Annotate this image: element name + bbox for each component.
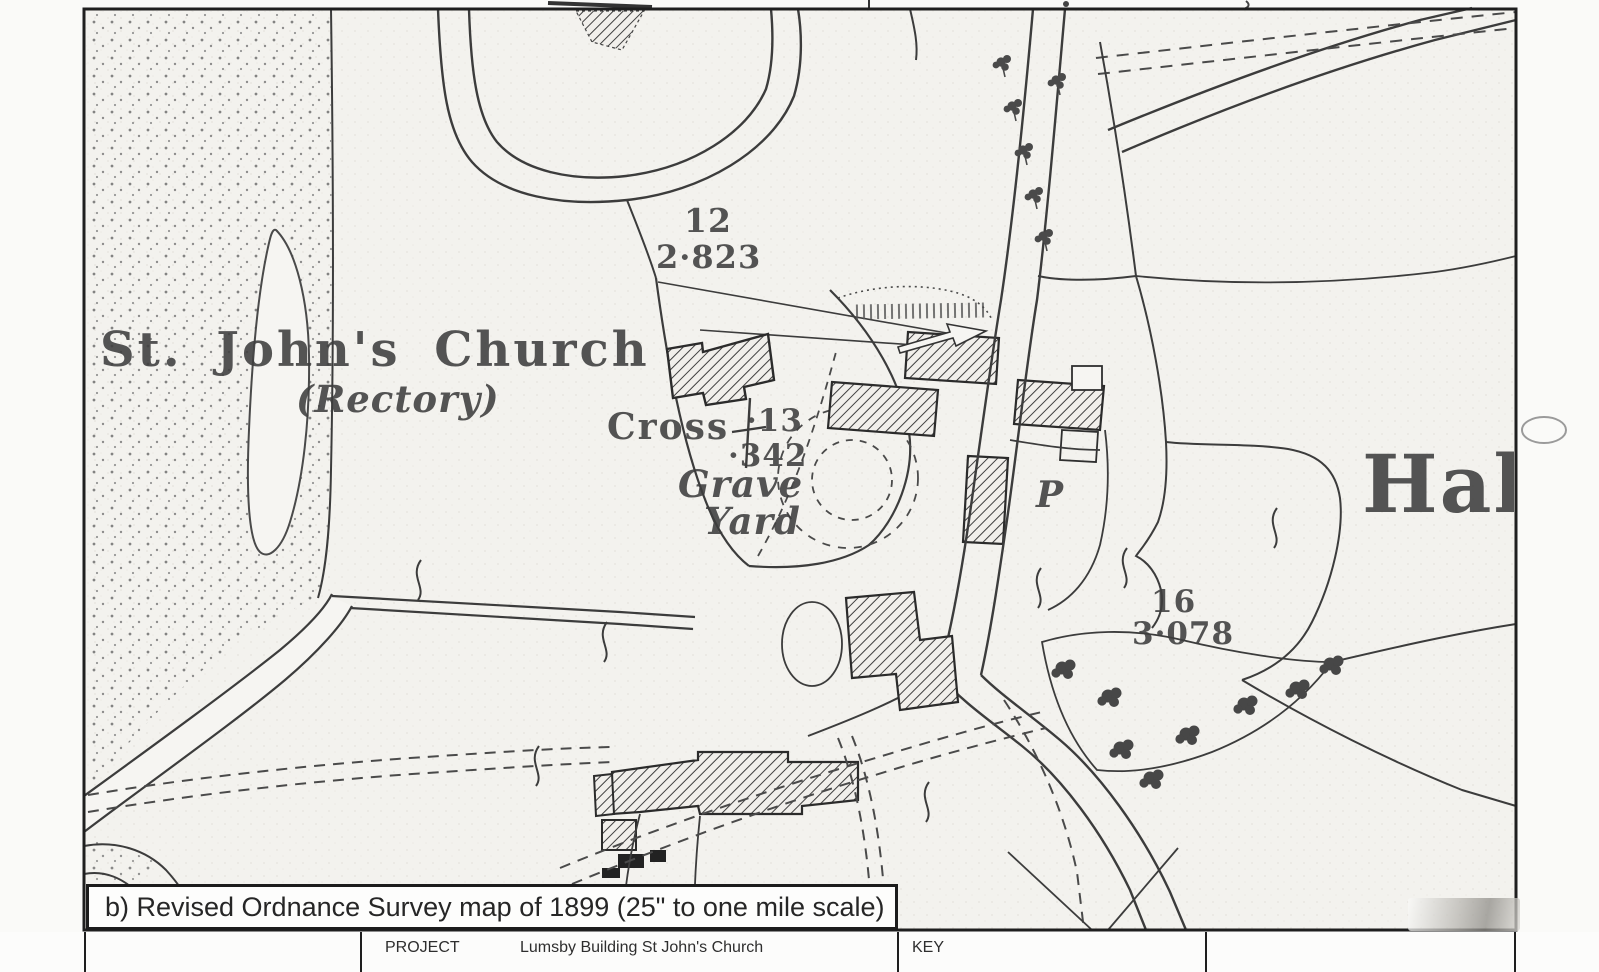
title-block-row: PROJECT Lumsby Building St John's Church… [0,932,1599,972]
table-border [84,932,86,972]
table-border [1205,932,1207,972]
cross-label: Cross [607,409,729,445]
scanned-document-page: { "page": { "paper_color": "#fafaf8", "m… [0,0,1599,951]
parcel-16-acreage: 3·078 [1132,619,1234,650]
pump-label: P [1036,477,1064,513]
key-label: KEY [912,939,944,957]
hall-label-clipped: Hal [1362,444,1514,524]
parcel-16-number: 16 [1151,587,1196,618]
margin-pen-mark [1522,417,1566,443]
table-border [1514,932,1516,972]
parcel-12-acreage: 2·823 [656,241,761,273]
table-border [360,932,362,972]
parcel-12-number: 12 [684,204,732,237]
parcel-13-number: ·13 [746,406,803,437]
scan-smudge [1408,898,1520,931]
church-name-label: St. John's Church [100,326,650,374]
table-border [897,932,899,972]
project-value: Lumsby Building St John's Church [520,939,763,957]
rectory-label: (Rectory) [296,381,500,418]
figure-caption-text: b) Revised Ordnance Survey map of 1899 (… [105,892,884,923]
figure-caption-box: b) Revised Ordnance Survey map of 1899 (… [86,884,898,930]
grave-label: Grave [678,466,803,503]
os-map-figure: 12 2·823 St. John's Church (Rectory) Cro… [0,0,1599,951]
project-label: PROJECT [385,939,460,957]
yard-label: Yard [704,503,801,540]
